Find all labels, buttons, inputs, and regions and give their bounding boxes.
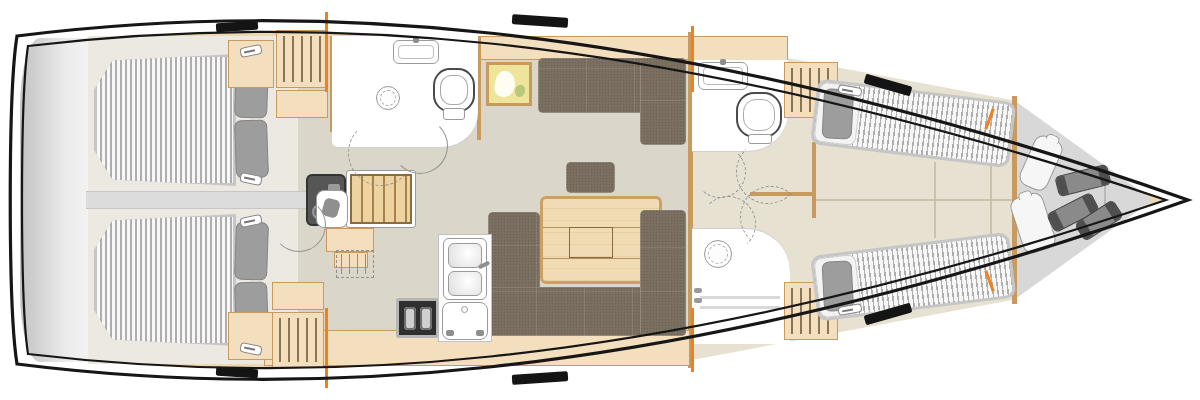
toilet-seat	[743, 99, 775, 131]
bulkhead-marker	[691, 308, 694, 372]
shower-bench-line	[700, 296, 780, 299]
bulkhead-marker	[325, 308, 328, 388]
toilet-fwd-head	[736, 92, 782, 138]
aisle-seam	[990, 166, 992, 234]
wall-chart-art	[486, 62, 532, 106]
door-swing	[740, 186, 802, 248]
hanging-locker-aft-port	[276, 30, 328, 88]
fwd-head-counter	[692, 36, 788, 62]
washbasin-fwd-head	[698, 62, 748, 90]
aft-berth-port	[94, 54, 236, 186]
door-swing	[392, 118, 448, 174]
salon-settee-top-corner	[640, 58, 686, 145]
basin-inner	[398, 45, 434, 59]
salon-top-lockers	[478, 36, 690, 60]
shower-fitting	[694, 288, 702, 293]
toilet-seat	[440, 75, 468, 105]
sink-basin	[448, 271, 482, 296]
toilet-tank	[443, 108, 465, 120]
optional-wet-locker	[336, 250, 374, 278]
pillow	[234, 119, 269, 178]
galley-stove	[396, 298, 439, 338]
fridge-hinge	[446, 330, 454, 336]
mattress-stripes	[97, 57, 233, 183]
table-leaf	[569, 227, 613, 258]
yacht-floorplan	[0, 0, 1200, 400]
chart-island	[515, 85, 525, 97]
pillow	[234, 221, 269, 280]
basin-inner	[703, 67, 743, 85]
salon-stool	[566, 162, 615, 193]
bulkhead-marker	[691, 26, 694, 92]
cabinet	[272, 282, 324, 310]
galley-double-sink	[443, 238, 487, 300]
lower-step	[326, 228, 374, 252]
shower-fitting	[694, 298, 702, 303]
hanging-locker-aft-stbd	[272, 312, 324, 368]
chart-landmass	[493, 69, 518, 99]
door-swing	[272, 198, 326, 252]
aisle-seam	[934, 162, 936, 238]
faucet	[413, 37, 419, 43]
cabinet	[276, 90, 328, 118]
swim-platform	[20, 38, 90, 362]
salon-settee-u-right	[640, 210, 686, 336]
galley-fridge	[442, 302, 488, 340]
faucet	[720, 59, 726, 65]
pillow	[822, 88, 855, 140]
shower-drain-aft-head	[376, 86, 400, 110]
fwd-head-wall-v	[812, 142, 816, 218]
hanger-ticks	[341, 254, 369, 274]
toilet-aft-head	[433, 68, 475, 112]
mattress-stripes	[97, 217, 233, 343]
fridge-latch	[461, 306, 468, 313]
aisle-centerline	[816, 199, 1012, 201]
washbasin-aft-head	[393, 40, 439, 64]
bulkhead-marker	[325, 12, 328, 92]
sink-basin	[448, 243, 482, 268]
cockpit-corridor	[86, 191, 306, 209]
aft-berth-stbd	[94, 214, 236, 346]
shower-bench-line	[700, 306, 780, 309]
burner	[420, 307, 432, 330]
burner	[404, 307, 416, 330]
fridge-hinge	[476, 330, 484, 336]
